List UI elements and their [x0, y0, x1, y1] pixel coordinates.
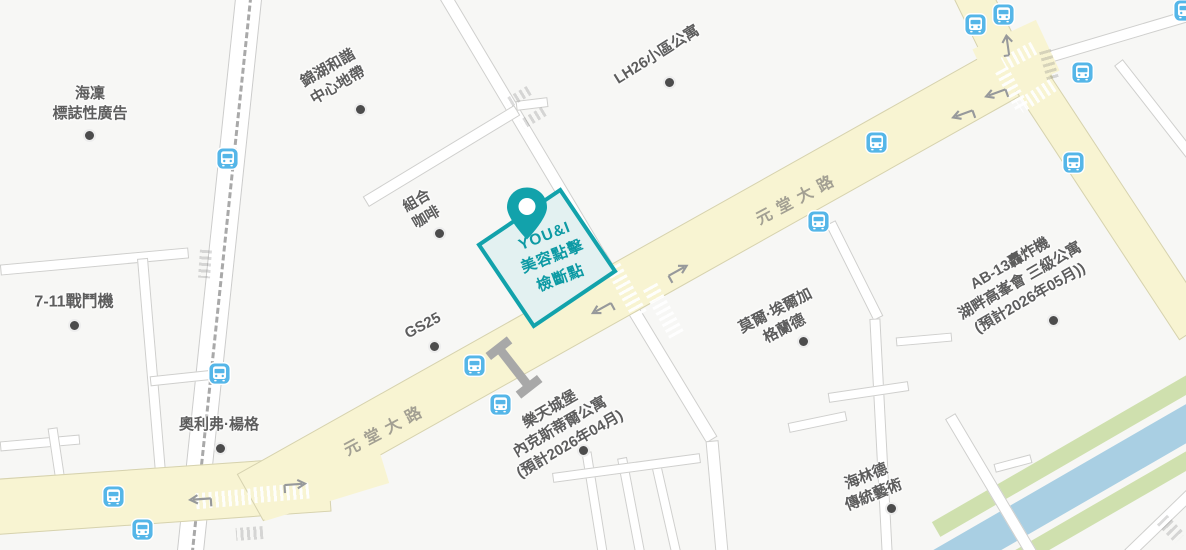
poi-label[interactable]: 奧利弗·楊格 — [179, 415, 259, 435]
bus-icon[interactable] — [1173, 0, 1186, 22]
road — [1114, 59, 1186, 166]
poi-dot — [663, 76, 676, 89]
bus-icon[interactable] — [992, 3, 1015, 26]
poi-label[interactable]: AB-13轟炸機 湖畔高峯會 三級公寓 (預計2026年05月)) — [945, 220, 1095, 341]
road — [827, 381, 909, 403]
bus-icon[interactable] — [807, 210, 830, 233]
crosswalk — [1157, 515, 1185, 543]
poi-label[interactable]: LH26小區公寓 — [611, 21, 703, 89]
road — [0, 435, 80, 452]
bus-icon[interactable] — [131, 518, 154, 541]
map-canvas[interactable]: YOU&I 美容點擊 檢斷點 海凜 標誌性廣告 錦湖和諧 中心地帶 LH26小區… — [0, 0, 1186, 550]
right-turn-arrow — [281, 478, 312, 502]
road — [137, 257, 166, 472]
location-pin-icon[interactable] — [504, 186, 550, 247]
road — [869, 318, 892, 550]
bus-icon[interactable] — [1062, 151, 1085, 174]
poi-dot — [1047, 314, 1060, 327]
poi-dot — [433, 227, 446, 240]
poi-label[interactable]: GS25 — [401, 308, 444, 343]
bus-icon[interactable] — [865, 131, 888, 154]
bus-icon[interactable] — [463, 354, 486, 377]
poi-dot — [83, 129, 96, 142]
road — [0, 247, 189, 275]
road — [706, 440, 729, 550]
road — [1044, 10, 1186, 64]
poi-dot — [428, 340, 441, 353]
poi-dot — [885, 502, 898, 515]
poi-dot — [354, 103, 367, 116]
left-turn-arrow — [183, 493, 214, 517]
poi-dot — [68, 319, 81, 332]
bus-icon[interactable] — [216, 147, 239, 170]
road — [362, 105, 520, 207]
road — [787, 411, 847, 433]
road — [896, 332, 953, 346]
crosswalk — [519, 107, 546, 129]
poi-label[interactable]: 錦湖和諧 中心地帶 — [297, 45, 369, 109]
poi-dot — [214, 442, 227, 455]
poi-label[interactable]: 海凜 標誌性廣告 — [52, 84, 127, 124]
poi-label[interactable]: 7-11戰鬥機 — [34, 291, 113, 312]
bus-icon[interactable] — [964, 13, 987, 36]
poi-label[interactable]: 莫爾·埃爾加 格蘭德 — [735, 284, 824, 356]
crosswalk — [198, 250, 212, 279]
crosswalk — [235, 526, 263, 541]
bus-icon[interactable] — [102, 485, 125, 508]
bus-icon[interactable] — [489, 393, 512, 416]
road — [651, 463, 681, 550]
bus-icon[interactable] — [208, 362, 231, 385]
road — [825, 220, 883, 321]
poi-dot — [797, 335, 810, 348]
bus-icon[interactable] — [1071, 61, 1094, 84]
